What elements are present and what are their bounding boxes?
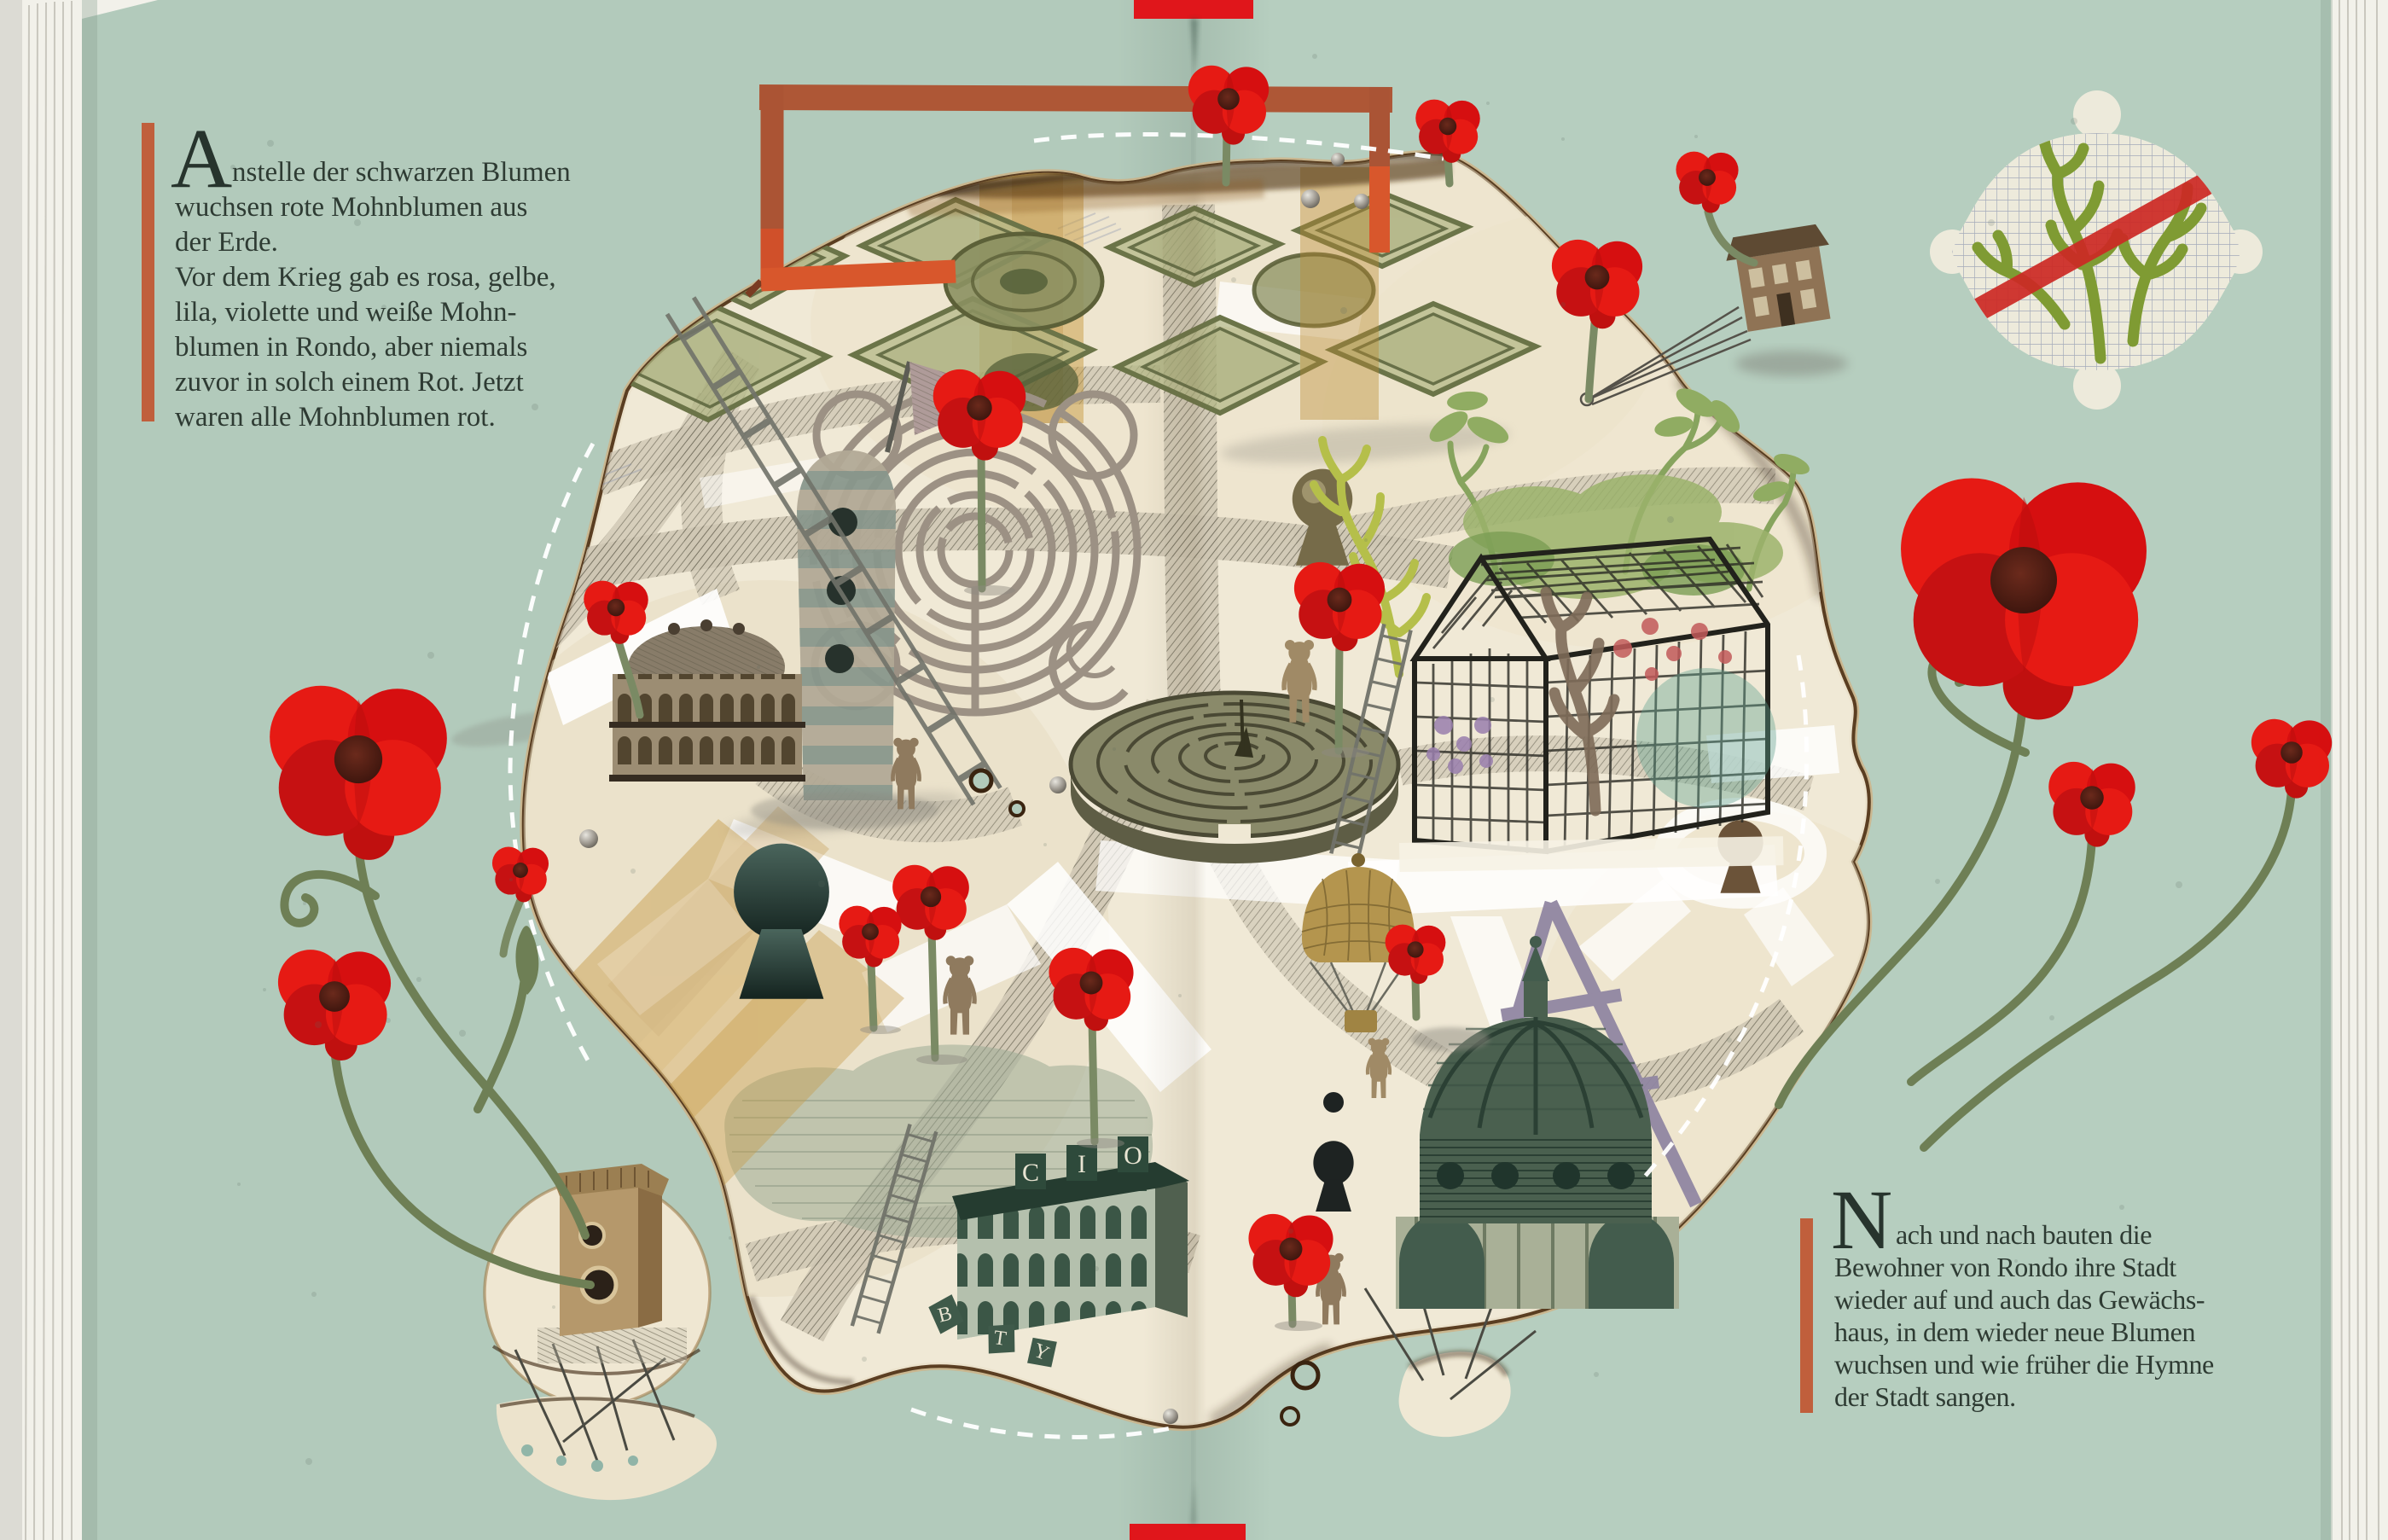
svg-text:C: C <box>1022 1159 1039 1187</box>
svg-text:blumen in Rondo, aber niemals: blumen in Rondo, aber niemals <box>175 332 527 363</box>
svg-text:Vor dem Krieg gab es rosa, gel: Vor dem Krieg gab es rosa, gelbe, <box>175 262 556 293</box>
svg-text:haus, in dem wieder neue Blume: haus, in dem wieder neue Blumen <box>1834 1316 2195 1347</box>
svg-text:wuchsen und wie früher die Hym: wuchsen und wie früher die Hymne <box>1834 1349 2214 1380</box>
svg-text:der Erde.: der Erde. <box>175 227 278 258</box>
svg-text:zuvor in solch einem Rot. Jetz: zuvor in solch einem Rot. Jetzt <box>175 367 524 398</box>
svg-text:wuchsen rote Mohnblumen aus: wuchsen rote Mohnblumen aus <box>175 192 527 223</box>
svg-text:ach und nach bauten die: ach und nach bauten die <box>1896 1219 2152 1250</box>
svg-text:wieder auf und auch das Gewäch: wieder auf und auch das Gewächs- <box>1834 1284 2205 1315</box>
svg-text:der Stadt sangen.: der Stadt sangen. <box>1834 1381 2016 1412</box>
svg-text:O: O <box>1124 1142 1142 1170</box>
svg-text:lila, violette und weiße Mohn-: lila, violette und weiße Mohn- <box>175 297 517 328</box>
svg-text:nstelle der schwarzen Blumen: nstelle der schwarzen Blumen <box>232 157 571 188</box>
svg-text:I: I <box>1078 1150 1086 1178</box>
svg-text:waren alle Mohnblumen rot.: waren alle Mohnblumen rot. <box>175 402 496 433</box>
svg-text:Bewohner von Rondo ihre Stadt: Bewohner von Rondo ihre Stadt <box>1834 1252 2176 1282</box>
